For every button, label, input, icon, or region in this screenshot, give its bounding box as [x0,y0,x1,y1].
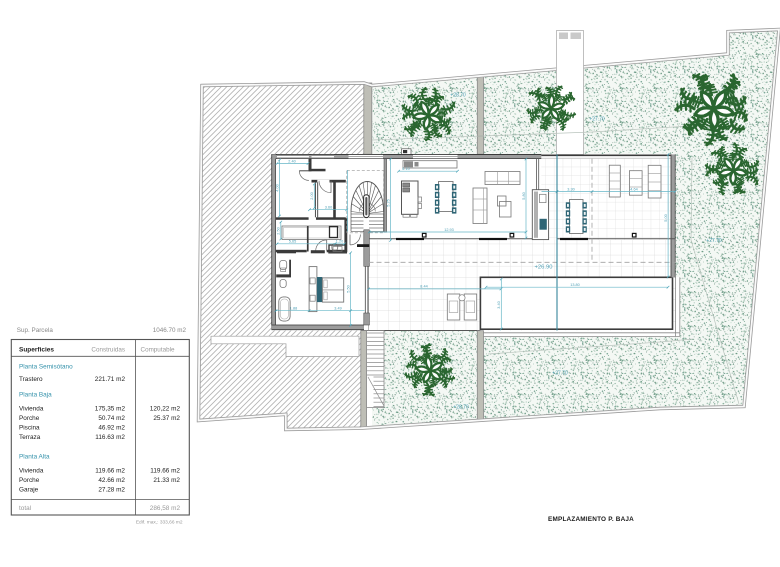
svg-text:46.92 m2: 46.92 m2 [98,425,125,432]
svg-text:Terraza: Terraza [19,434,41,441]
svg-text:1.88: 1.88 [290,307,297,311]
svg-text:12.93: 12.93 [444,228,454,232]
svg-text:13.80: 13.80 [570,283,580,287]
svg-text:Garaje: Garaje [19,487,39,494]
svg-text:286,58 m2: 286,58 m2 [150,505,181,512]
svg-text:6.10: 6.10 [402,167,409,171]
svg-text:+27.70: +27.70 [552,371,568,377]
svg-text:3.40: 3.40 [497,301,501,308]
svg-text:Vivienda: Vivienda [19,406,44,413]
svg-text:8.44: 8.44 [420,285,427,289]
svg-text:Edif. max,: 333,66 m2: Edif. max,: 333,66 m2 [136,520,183,526]
svg-text:+26.90: +26.90 [535,264,553,270]
svg-text:27.28 m2: 27.28 m2 [98,487,125,494]
svg-text:5.25: 5.25 [386,199,390,206]
svg-text:2.40: 2.40 [288,159,295,163]
svg-text:25.37 m2: 25.37 m2 [153,415,180,422]
svg-text:5.80: 5.80 [522,192,526,199]
svg-text:1046.70 m2: 1046.70 m2 [153,327,187,334]
svg-text:4.64: 4.64 [630,187,637,191]
svg-text:Piscina: Piscina [19,425,40,432]
svg-text:+28.70: +28.70 [450,93,466,99]
svg-text:175,35 m2: 175,35 m2 [95,406,126,413]
svg-text:+27.70: +27.70 [589,117,605,123]
svg-text:Computable: Computable [141,347,175,354]
svg-text:120,22 m2: 120,22 m2 [150,406,181,413]
svg-text:3.60: 3.60 [325,206,332,210]
svg-text:EMPLAZAMIENTO P. BAJA: EMPLAZAMIENTO P. BAJA [548,516,634,523]
svg-text:50.74 m2: 50.74 m2 [98,415,125,422]
svg-text:119.66 m2: 119.66 m2 [95,468,125,475]
svg-text:Trastero: Trastero [19,376,43,383]
svg-text:+28.70: +28.70 [453,405,469,411]
svg-text:21.33 m2: 21.33 m2 [153,477,180,484]
svg-text:Planta Alta: Planta Alta [19,454,50,461]
svg-text:5.00: 5.00 [664,214,668,221]
svg-text:Porche: Porche [19,415,40,422]
svg-text:4.00: 4.00 [275,184,279,191]
svg-text:Planta Semisótano: Planta Semisótano [19,364,73,371]
svg-text:2.50: 2.50 [277,227,281,234]
svg-text:221.71 m2: 221.71 m2 [95,376,126,383]
svg-text:2.00: 2.00 [310,192,314,199]
svg-text:total: total [19,505,31,512]
svg-text:+27.70: +27.70 [706,238,722,244]
svg-text:Planta Baja: Planta Baja [19,392,52,399]
svg-text:5,65: 5,65 [289,240,296,244]
svg-text:5.50: 5.50 [346,285,350,292]
svg-text:1,20: 1,20 [336,240,343,244]
svg-text:116.63 m2: 116.63 m2 [95,434,125,441]
svg-text:3.30: 3.30 [567,187,574,191]
svg-text:Porche: Porche [19,477,40,484]
svg-text:42.66 m2: 42.66 m2 [98,477,125,484]
svg-text:Superficies: Superficies [19,347,54,354]
svg-text:Sup. Parcela: Sup. Parcela [17,327,54,334]
svg-text:Construidas: Construidas [91,347,125,354]
svg-text:119.66 m2: 119.66 m2 [150,468,180,475]
svg-text:3.49: 3.49 [334,307,341,311]
svg-text:Vivienda: Vivienda [19,468,44,475]
